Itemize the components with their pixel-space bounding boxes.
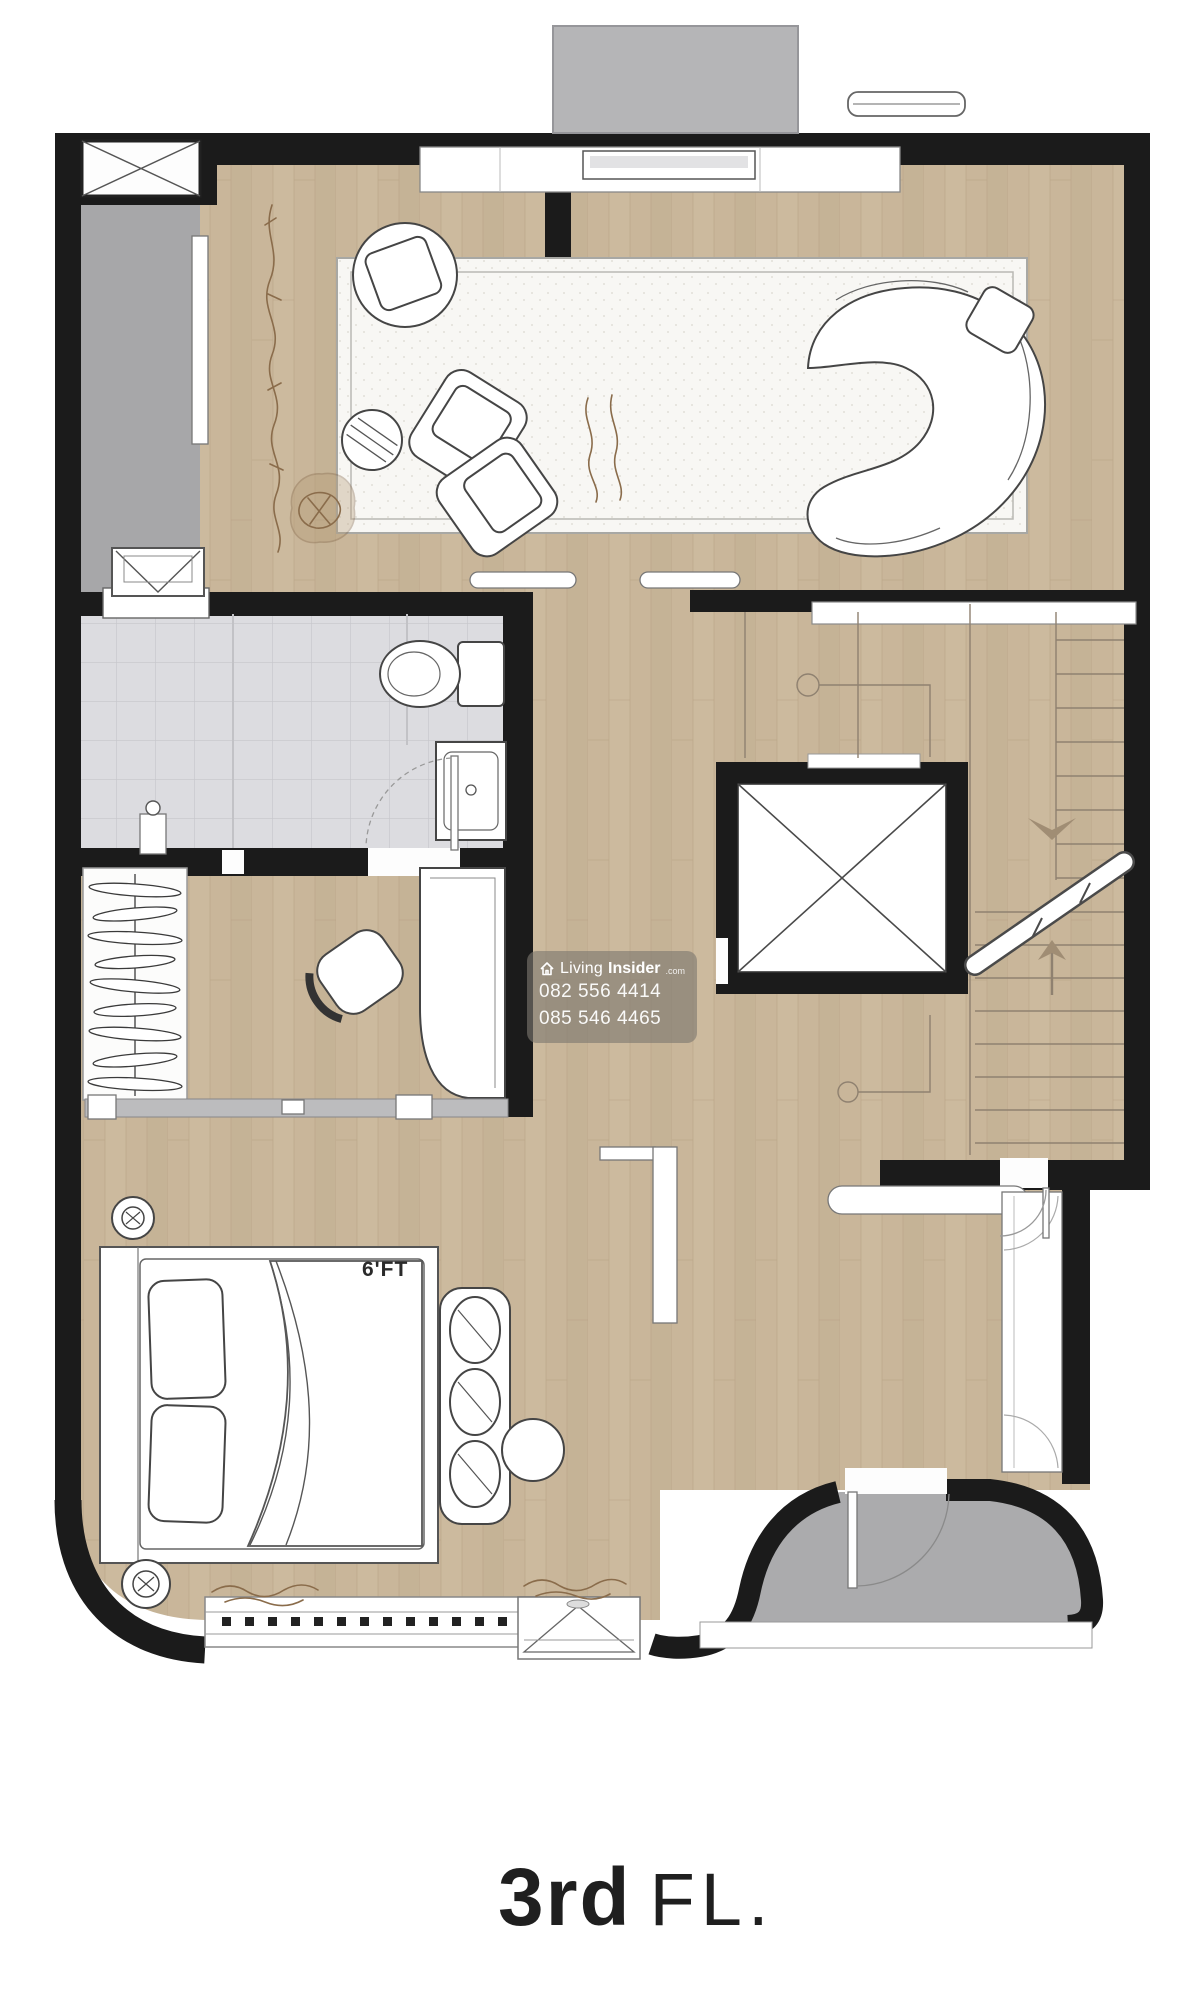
floor-suffix: FL.	[650, 1857, 775, 1942]
watermark-phone-1: 082 556 4414	[539, 978, 685, 1006]
ceiling-device-icon	[112, 1197, 154, 1239]
pillow	[148, 1279, 226, 1400]
bathroom-door-leaf	[451, 756, 458, 850]
stair-landing	[812, 602, 1136, 624]
cabinet	[1002, 1192, 1062, 1472]
ac-condenser-left	[103, 548, 209, 618]
potted-plant	[291, 473, 355, 542]
watermark-brand-suffix: Insider	[608, 960, 660, 978]
watermark-brand-prefix: Living	[560, 960, 603, 978]
bed-size-label: 6'FT	[362, 1258, 408, 1282]
watermark-brand: LivingInsider.com	[539, 960, 685, 978]
floor-number: 3rd	[498, 1851, 632, 1945]
bedroom-sliding-panel	[653, 1147, 677, 1323]
ceiling-device-icon	[122, 1560, 170, 1608]
vanity-sink	[436, 742, 506, 840]
threshold-bench	[640, 572, 740, 588]
balcony-sliding-door	[192, 236, 208, 444]
sliding-door-track	[85, 1095, 508, 1119]
round-side-table	[502, 1419, 564, 1481]
canopy	[553, 26, 798, 133]
ac-condenser-bottom	[518, 1597, 640, 1659]
elevator-sill	[808, 754, 920, 768]
floor-label: 3rd FL.	[498, 1851, 775, 1945]
floorplan-page: LivingInsider.com 082 556 4414 085 546 4…	[0, 0, 1200, 1999]
watermark: LivingInsider.com 082 556 4414 085 546 4…	[527, 951, 697, 1043]
pillow	[148, 1405, 226, 1524]
terrace-door-opening	[845, 1468, 947, 1494]
threshold-bench	[470, 572, 576, 588]
terrace-edge	[700, 1622, 1092, 1648]
foyer-door-opening	[1000, 1158, 1048, 1188]
desk	[420, 868, 505, 1098]
bed	[100, 1247, 438, 1563]
watermark-phone-2: 085 546 4465	[539, 1005, 685, 1033]
side-table	[342, 410, 402, 470]
clothes-hangers	[88, 881, 182, 1093]
bench	[828, 1186, 1028, 1214]
swivel-chair	[353, 223, 457, 327]
balcony-left-floor	[77, 150, 200, 593]
elevator	[716, 784, 946, 984]
watermark-house-icon	[539, 961, 555, 977]
bed-bench	[440, 1288, 510, 1524]
terrace-door-leaf	[848, 1492, 857, 1588]
bedroom-window-strip	[205, 1597, 640, 1659]
toilet	[380, 641, 504, 707]
watermark-brand-tld: .com	[665, 967, 685, 978]
